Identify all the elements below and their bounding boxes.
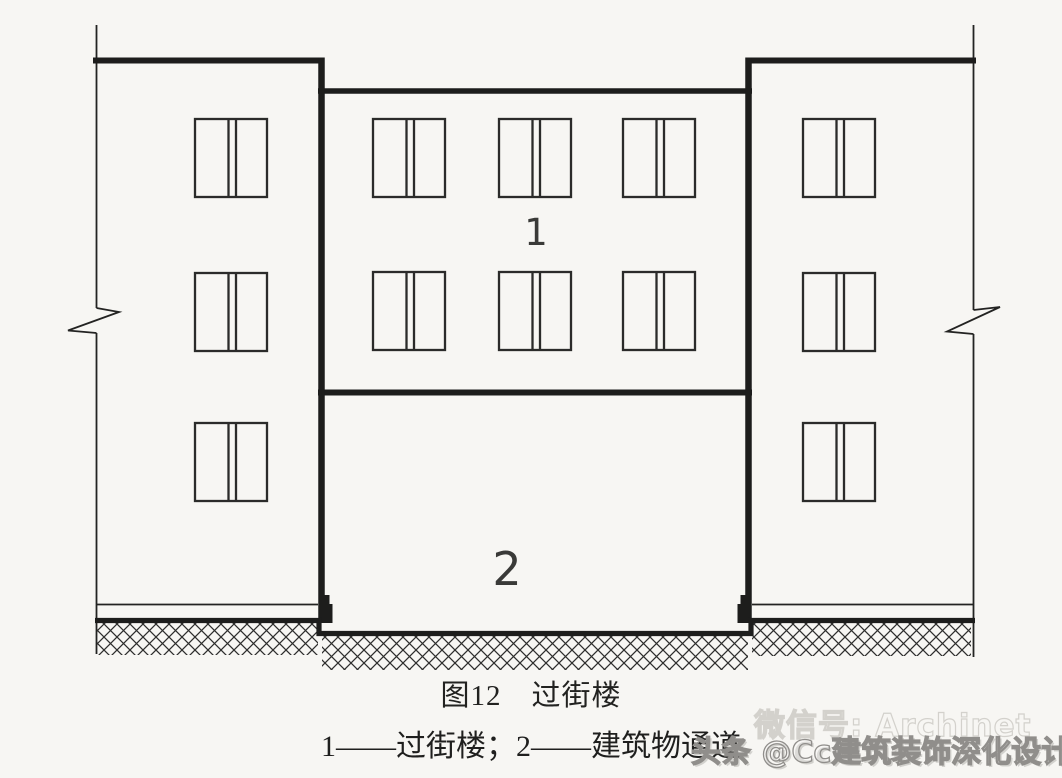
window-right-row3 — [803, 423, 875, 501]
window-center-r1c2 — [499, 119, 571, 197]
window-left-row2 — [195, 273, 267, 351]
overpass-elevation-drawing: 1 2 — [0, 0, 1062, 690]
window-center-r2c3 — [623, 272, 695, 350]
figure-page: 1 2 图12 过街楼 1——过街楼；2——建筑物通道 微信号: Archine… — [0, 0, 1062, 778]
window-left-row3 — [195, 423, 267, 501]
ground-hatch-passage — [322, 636, 748, 670]
ground-hatch-right — [752, 623, 971, 656]
left-wall-foot — [325, 595, 333, 623]
window-center-r2c1 — [373, 272, 445, 350]
window-right-row1 — [803, 119, 875, 197]
right-wall-foot — [738, 595, 746, 623]
figure-caption: 图12 过街楼 — [0, 680, 1062, 713]
window-left-row1 — [195, 119, 267, 197]
ground-hatch-left — [97, 623, 318, 655]
label-overpass: 1 — [524, 211, 548, 254]
label-passage: 2 — [492, 542, 521, 596]
window-center-r2c2 — [499, 272, 571, 350]
window-center-r1c3 — [623, 119, 695, 197]
break-symbol-right-icon — [947, 307, 1000, 334]
window-center-r1c1 — [373, 119, 445, 197]
window-right-row2 — [803, 273, 875, 351]
break-symbol-left-icon — [68, 308, 119, 333]
figure-legend: 1——过街楼；2——建筑物通道 — [0, 729, 1062, 765]
